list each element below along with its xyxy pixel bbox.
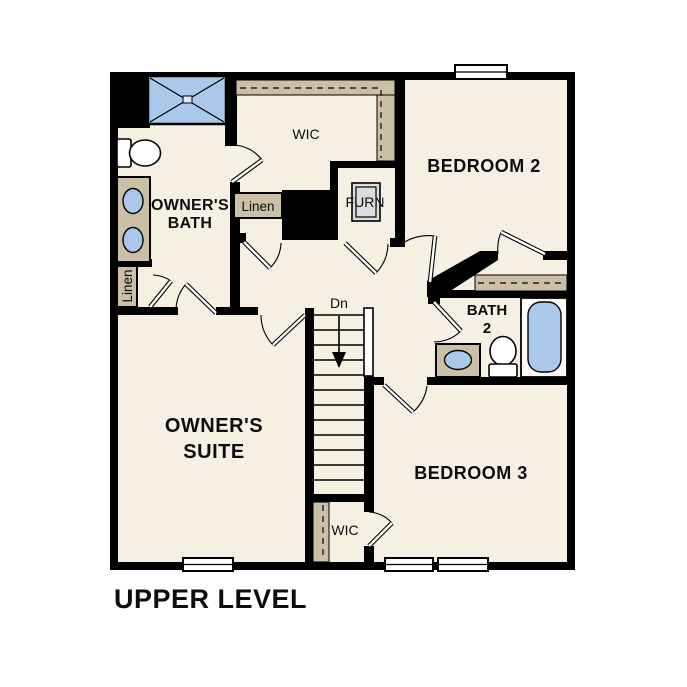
bedroom2-label: BEDROOM 2: [427, 156, 541, 176]
linen-bath-label: Linen: [120, 269, 135, 302]
owners-bath-label-line2: BATH: [168, 215, 212, 232]
owners-bath-label-line1: OWNER'S: [151, 197, 229, 214]
wic-lower-shelf: [313, 502, 329, 562]
double-vanity-sink-icon: [117, 177, 150, 262]
toilet-icon: [489, 337, 517, 378]
floor-plan-page: OWNER'S BATH WIC Linen FURN BEDROOM 2 Li…: [0, 0, 687, 687]
bath2-label-line2: 2: [483, 320, 491, 337]
wic-lower-label: WIC: [331, 522, 358, 538]
owners-suite-label-line1: OWNER'S: [165, 415, 263, 437]
owners-suite-label-line2: SUITE: [183, 441, 244, 463]
window: [455, 65, 507, 79]
floor-base: [114, 76, 571, 566]
vanity-sink-icon: [436, 344, 480, 377]
furnace-label: FURN: [346, 194, 385, 210]
wic-upper-label: WIC: [292, 126, 319, 142]
wic-upper-shelf-side: [377, 95, 395, 161]
linen-hall-label: Linen: [241, 199, 274, 214]
window: [438, 558, 488, 571]
bedroom2-closet-shelf: [475, 275, 567, 291]
stair-railing: [364, 308, 373, 376]
shower-icon: [148, 76, 226, 124]
bedroom3-label: BEDROOM 3: [414, 463, 528, 483]
wic-upper-shelf: [236, 80, 395, 95]
page-title: UPPER LEVEL: [114, 584, 307, 614]
window: [385, 558, 433, 571]
bathtub-icon: [521, 298, 567, 377]
toilet-icon: [117, 139, 161, 167]
bath2-label-line1: BATH: [467, 302, 508, 319]
window: [183, 558, 233, 571]
stairs-down-label: Dn: [330, 295, 348, 311]
floor-plan-drawing: OWNER'S BATH WIC Linen FURN BEDROOM 2 Li…: [0, 0, 687, 687]
